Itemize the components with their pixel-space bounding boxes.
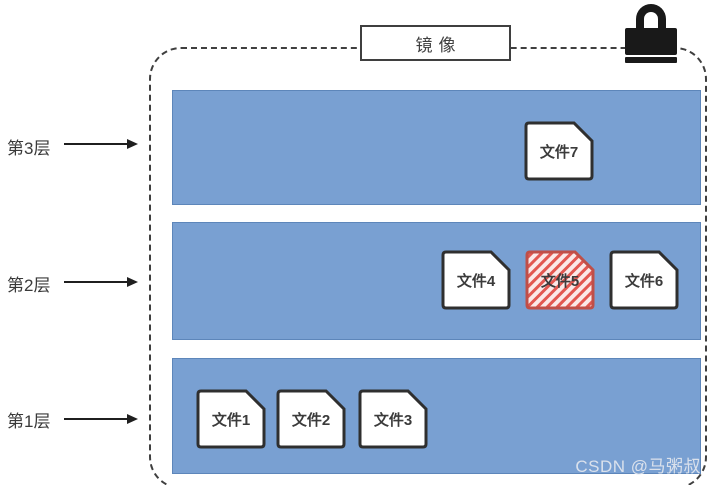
file-label: 文件4 (440, 249, 512, 311)
layer-3-arrow (64, 143, 128, 145)
file-icon-1: 文件1 (195, 388, 267, 450)
layer-2-arrow (64, 281, 128, 283)
padlock-icon (625, 4, 677, 63)
file-label: 文件1 (195, 388, 267, 450)
file-icon-2: 文件2 (275, 388, 347, 450)
file-label: 文件6 (608, 249, 680, 311)
csdn-watermark: CSDN @马粥叔 (575, 452, 701, 477)
padlock-body (625, 28, 677, 55)
file-label: 文件5 (524, 249, 596, 311)
file-icon-6: 文件6 (608, 249, 680, 311)
docker-image-layers-diagram: 镜像 第3层 第2层 第1层 文件1 文件2 文件3 文件4 (0, 0, 710, 485)
padlock-shackle (636, 4, 666, 31)
file-label: 文件2 (275, 388, 347, 450)
file-label: 文件7 (523, 120, 595, 182)
file-icon-3: 文件3 (357, 388, 429, 450)
image-title-box: 镜像 (360, 25, 511, 61)
layer-1-arrow (64, 418, 128, 420)
file-icon-4: 文件4 (440, 249, 512, 311)
file-icon-5-highlighted: 文件5 (524, 249, 596, 311)
layer-3-label: 第3层 (7, 134, 77, 159)
file-label: 文件3 (357, 388, 429, 450)
padlock-base (625, 57, 677, 63)
layer-2-label: 第2层 (7, 271, 77, 296)
file-icon-7: 文件7 (523, 120, 595, 182)
layer-3-bar (172, 90, 701, 205)
image-title-label: 镜像 (410, 31, 462, 56)
